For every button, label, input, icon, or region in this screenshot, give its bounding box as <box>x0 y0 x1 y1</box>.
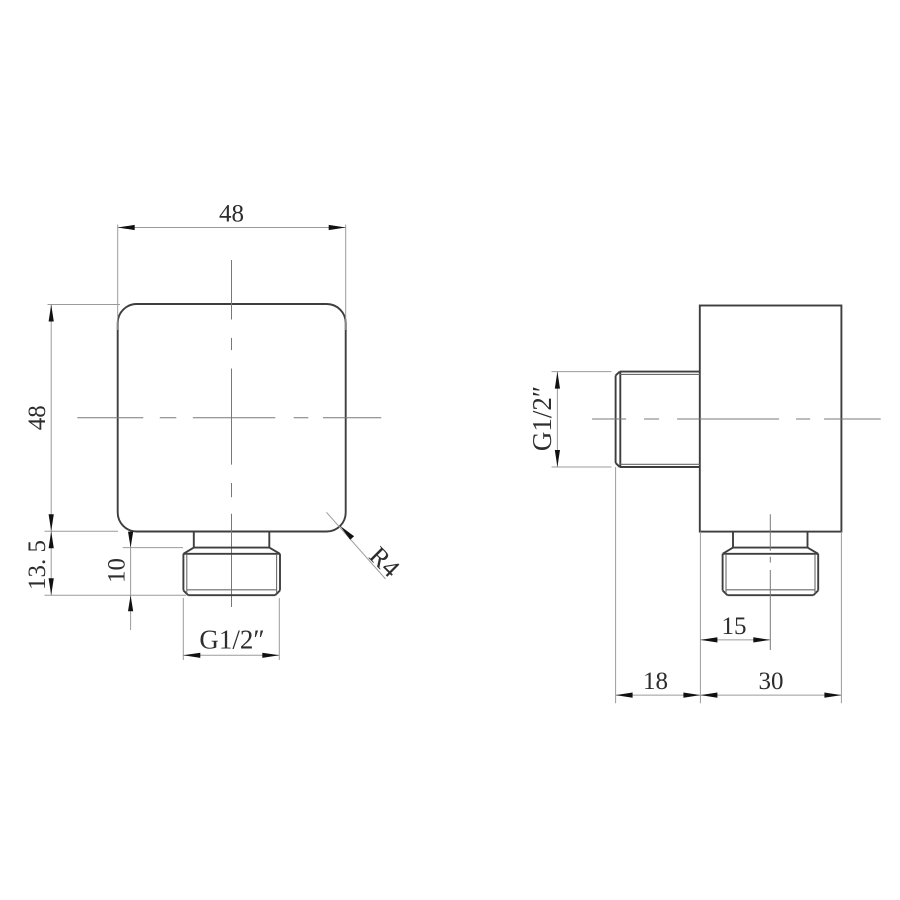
svg-text:13. 5: 13. 5 <box>24 540 51 590</box>
svg-text:G1/2″: G1/2″ <box>527 386 557 451</box>
svg-text:15: 15 <box>722 613 747 640</box>
svg-text:18: 18 <box>643 668 668 695</box>
svg-text:48: 48 <box>219 201 244 228</box>
svg-text:G1/2″: G1/2″ <box>199 625 264 655</box>
svg-text:48: 48 <box>24 405 51 430</box>
svg-text:30: 30 <box>759 668 784 695</box>
svg-text:10: 10 <box>104 558 131 583</box>
svg-text:R4: R4 <box>364 541 406 583</box>
